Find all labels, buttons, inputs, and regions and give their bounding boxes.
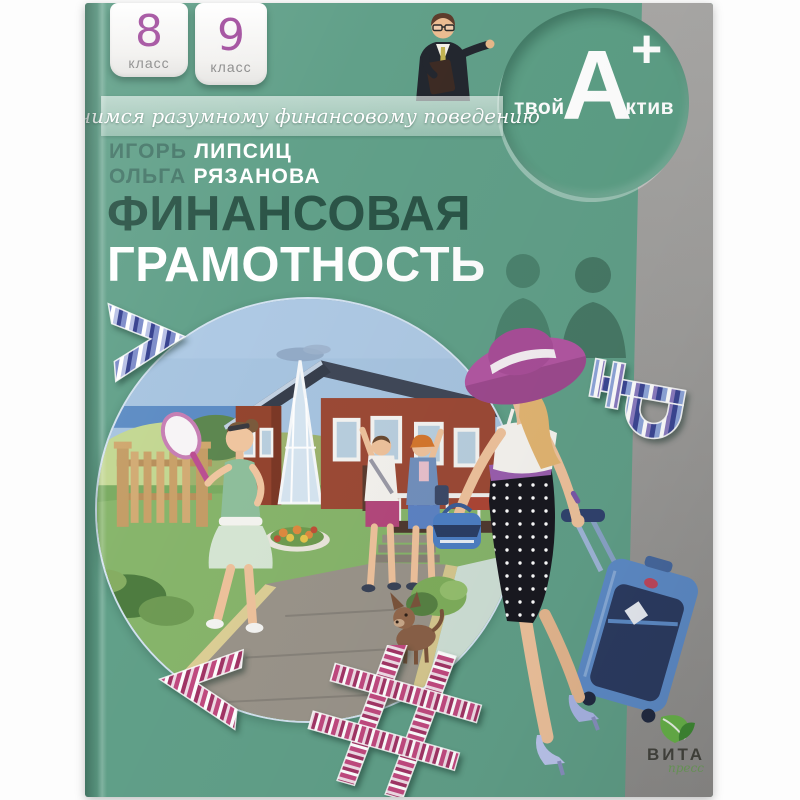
grade-badge-8: 8 класс [110, 3, 188, 77]
chevron-symbol-icon [103, 295, 195, 387]
grade-number: 9 [195, 14, 267, 58]
author-first-name: ОЛЬГА [109, 165, 186, 188]
grade-label: класс [110, 55, 188, 71]
brand-big-letter: А [562, 36, 633, 134]
authors-block: ИГОРЬ ЛИПСИЦ ОЛЬГА РЯЗАНОВА [109, 139, 321, 189]
product-photo: твой А + ктив 8 класс [0, 0, 800, 800]
author-first-name: ИГОРЬ [109, 140, 187, 163]
author-line: ОЛЬГА РЯЗАНОВА [109, 164, 321, 189]
title-line-1: ФИНАНСОВАЯ [107, 189, 486, 240]
brand-logo-tvoy-aktiv: твой А + ктив [499, 8, 689, 198]
grade-badge-9: 9 класс [195, 3, 267, 85]
leaf-icon [655, 711, 697, 745]
grade-label: класс [195, 59, 267, 75]
grade-number: 8 [110, 10, 188, 54]
author-last-name: РЯЗАНОВА [193, 165, 320, 188]
tagline-ribbon: Учимся разумному финансовому поведению [101, 96, 503, 136]
author-line: ИГОРЬ ЛИПСИЦ [109, 139, 321, 164]
brand-word-post: ктив [625, 96, 674, 120]
tagline-text: Учимся разумному финансовому поведению [85, 104, 540, 128]
book-cover: твой А + ктив 8 класс [85, 3, 713, 797]
businessman-illustration [388, 5, 498, 101]
plus-icon: + [631, 22, 663, 76]
less-than-symbol-icon [145, 639, 245, 735]
author-last-name: ЛИПСИЦ [194, 140, 292, 163]
brand-letter-wrap: А + [562, 36, 633, 134]
sun-hat [455, 314, 593, 416]
publisher-logo: ВИТА пресс [630, 711, 713, 775]
title-line-2: ГРАМОТНОСТЬ [107, 240, 486, 291]
book-title: ФИНАНСОВАЯ ГРАМОТНОСТЬ [107, 189, 486, 291]
fence [114, 442, 212, 527]
